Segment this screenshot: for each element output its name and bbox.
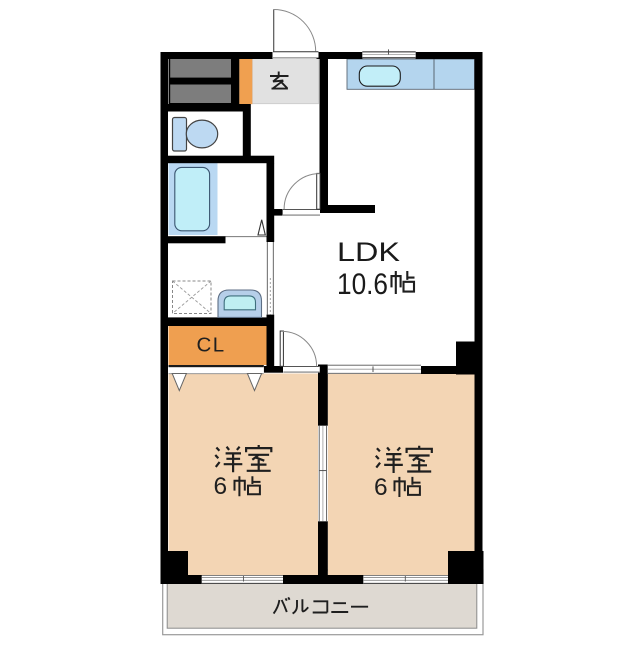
svg-text:10.6: 10.6 xyxy=(337,268,388,301)
svg-text:LDK: LDK xyxy=(337,237,400,267)
svg-text:6: 6 xyxy=(374,474,388,501)
svg-text:6: 6 xyxy=(214,473,228,500)
svg-text:CL: CL xyxy=(197,334,226,357)
